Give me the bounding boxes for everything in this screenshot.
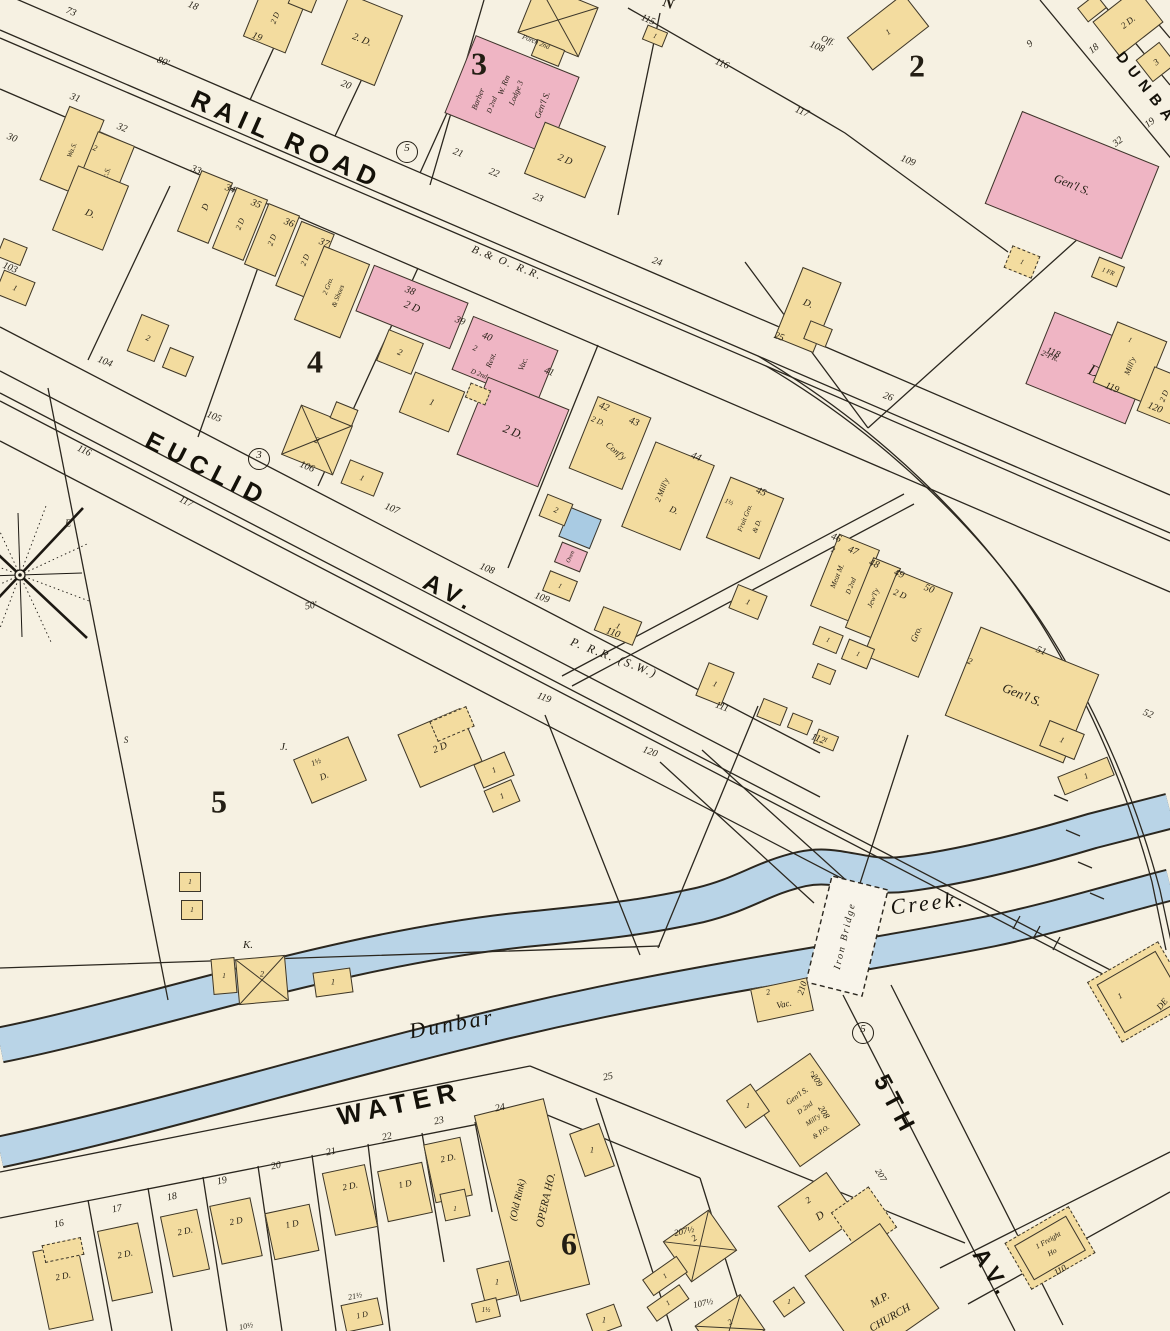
circled-street-width-number: 3 [248,448,270,470]
street-label: 5TH [867,1070,923,1142]
lot-number: 24 [494,1102,506,1115]
lot-number: 117 [793,104,810,120]
creek-label: Creek. [889,886,967,921]
cross-roof-icon [236,956,288,1004]
block-number: N [660,0,676,14]
lot-number: 109 [899,153,917,169]
lot-number: 32 [115,121,128,135]
lot-number: 207 [873,1167,889,1184]
lot-number: 21 [451,146,464,160]
lot-number: 31 [68,91,81,105]
lot-number: 18 [1087,42,1102,57]
lot-number: 105 [205,409,223,425]
lot-number: 107 [383,501,401,517]
lot-number: 73 [64,5,77,19]
lot-number: 119 [535,690,552,705]
building [756,698,788,726]
lot-number: 20 [270,1160,282,1173]
building-label: 1 [331,978,335,987]
lot-number: 16 [53,1218,65,1231]
block-number: 5 [211,784,227,821]
block-number: 4 [307,344,323,381]
lot-number: 19 [1143,116,1158,131]
lot-number: 116 [75,443,93,459]
lot-number: K. [243,939,253,951]
lot-number: 115 [639,12,656,28]
building-label: 1 [787,1298,791,1306]
lot-number: 25 [772,330,785,344]
railroad-label: P. R.R. (S.W.) [568,634,660,681]
lot-number: E [65,519,71,530]
lot-number: J. [280,741,288,753]
circled-street-width-number: 5 [396,141,418,163]
lot-number: 10½ [238,1320,254,1331]
creek-label: Dunbar [407,1004,497,1045]
lot-number: 117 [177,494,195,510]
lot-number: 21 [325,1146,337,1159]
lot-number: 111 [714,700,730,715]
lot-number: 9 [1025,38,1036,50]
building [1087,941,1170,1043]
lot-number: 120 [641,744,659,759]
lot-number: 26 [881,390,894,404]
building [293,736,367,804]
block-number: 6 [561,1226,577,1263]
building-label: 1 [222,972,226,980]
building [377,1162,433,1222]
building [97,1222,153,1301]
lot-number: 107½ [692,1296,714,1310]
lot-number: 25 [602,1071,614,1084]
block-number: 3 [471,46,487,83]
lot-number: 116 [713,56,730,72]
lot-number: 17 [111,1203,123,1216]
lot-number: 24 [650,255,663,269]
building [265,1204,320,1261]
lot-number: 23 [433,1115,445,1128]
lot-number: 20 [339,78,352,92]
street-label: EUCLID [140,426,274,513]
building [209,1197,263,1264]
building-label: 1 [746,1102,750,1110]
railroad-label: Iron Bridge [832,901,858,970]
lot-number: 52 [1141,707,1154,721]
building [162,347,194,377]
lot-number: 108 [478,561,496,577]
lot-number: 23 [531,191,544,205]
building-inner-outline [1097,951,1170,1033]
railroad-label: B.& O. R.R. [470,243,544,282]
map-content-layers: Wa.S.2Vac.S.D.D2 D2 D2 D2 Gro.& Shoes12 … [0,0,1170,1331]
building-label: 2 [260,970,264,979]
block-number: 2 [909,48,925,85]
building [812,663,837,685]
lot-number: 19 [216,1175,228,1188]
building-label: 1 [190,906,194,914]
building-label: 1 [453,1205,457,1213]
building [0,270,36,307]
street-label: AV. [418,569,482,620]
building-label: 1 [188,878,192,886]
building-label: 1 [590,1146,594,1155]
sanborn-fire-insurance-map: Wa.S.2Vac.S.D.D2 D2 D2 D2 Gro.& Shoes12 … [0,0,1170,1331]
building-label: 1 [602,1316,606,1325]
lot-number: 50' [304,600,318,613]
building [160,1209,210,1278]
lot-number: 18 [186,0,199,13]
lot-number: 30 [5,131,18,145]
building [322,1164,378,1236]
street-label: WATER [335,1076,466,1133]
lot-number: 18 [166,1191,178,1204]
building [235,955,289,1005]
lot-number: S [124,735,129,745]
lot-number: 104 [96,354,114,370]
circled-street-width-number: 5 [852,1022,874,1044]
building [243,0,307,54]
lot-number: 80' [155,55,170,70]
building [787,712,813,735]
building-label: 1½ [482,1306,491,1314]
building-label: 1 [495,1278,499,1287]
lot-number: 22 [381,1131,393,1144]
lot-number: 22 [487,166,500,180]
